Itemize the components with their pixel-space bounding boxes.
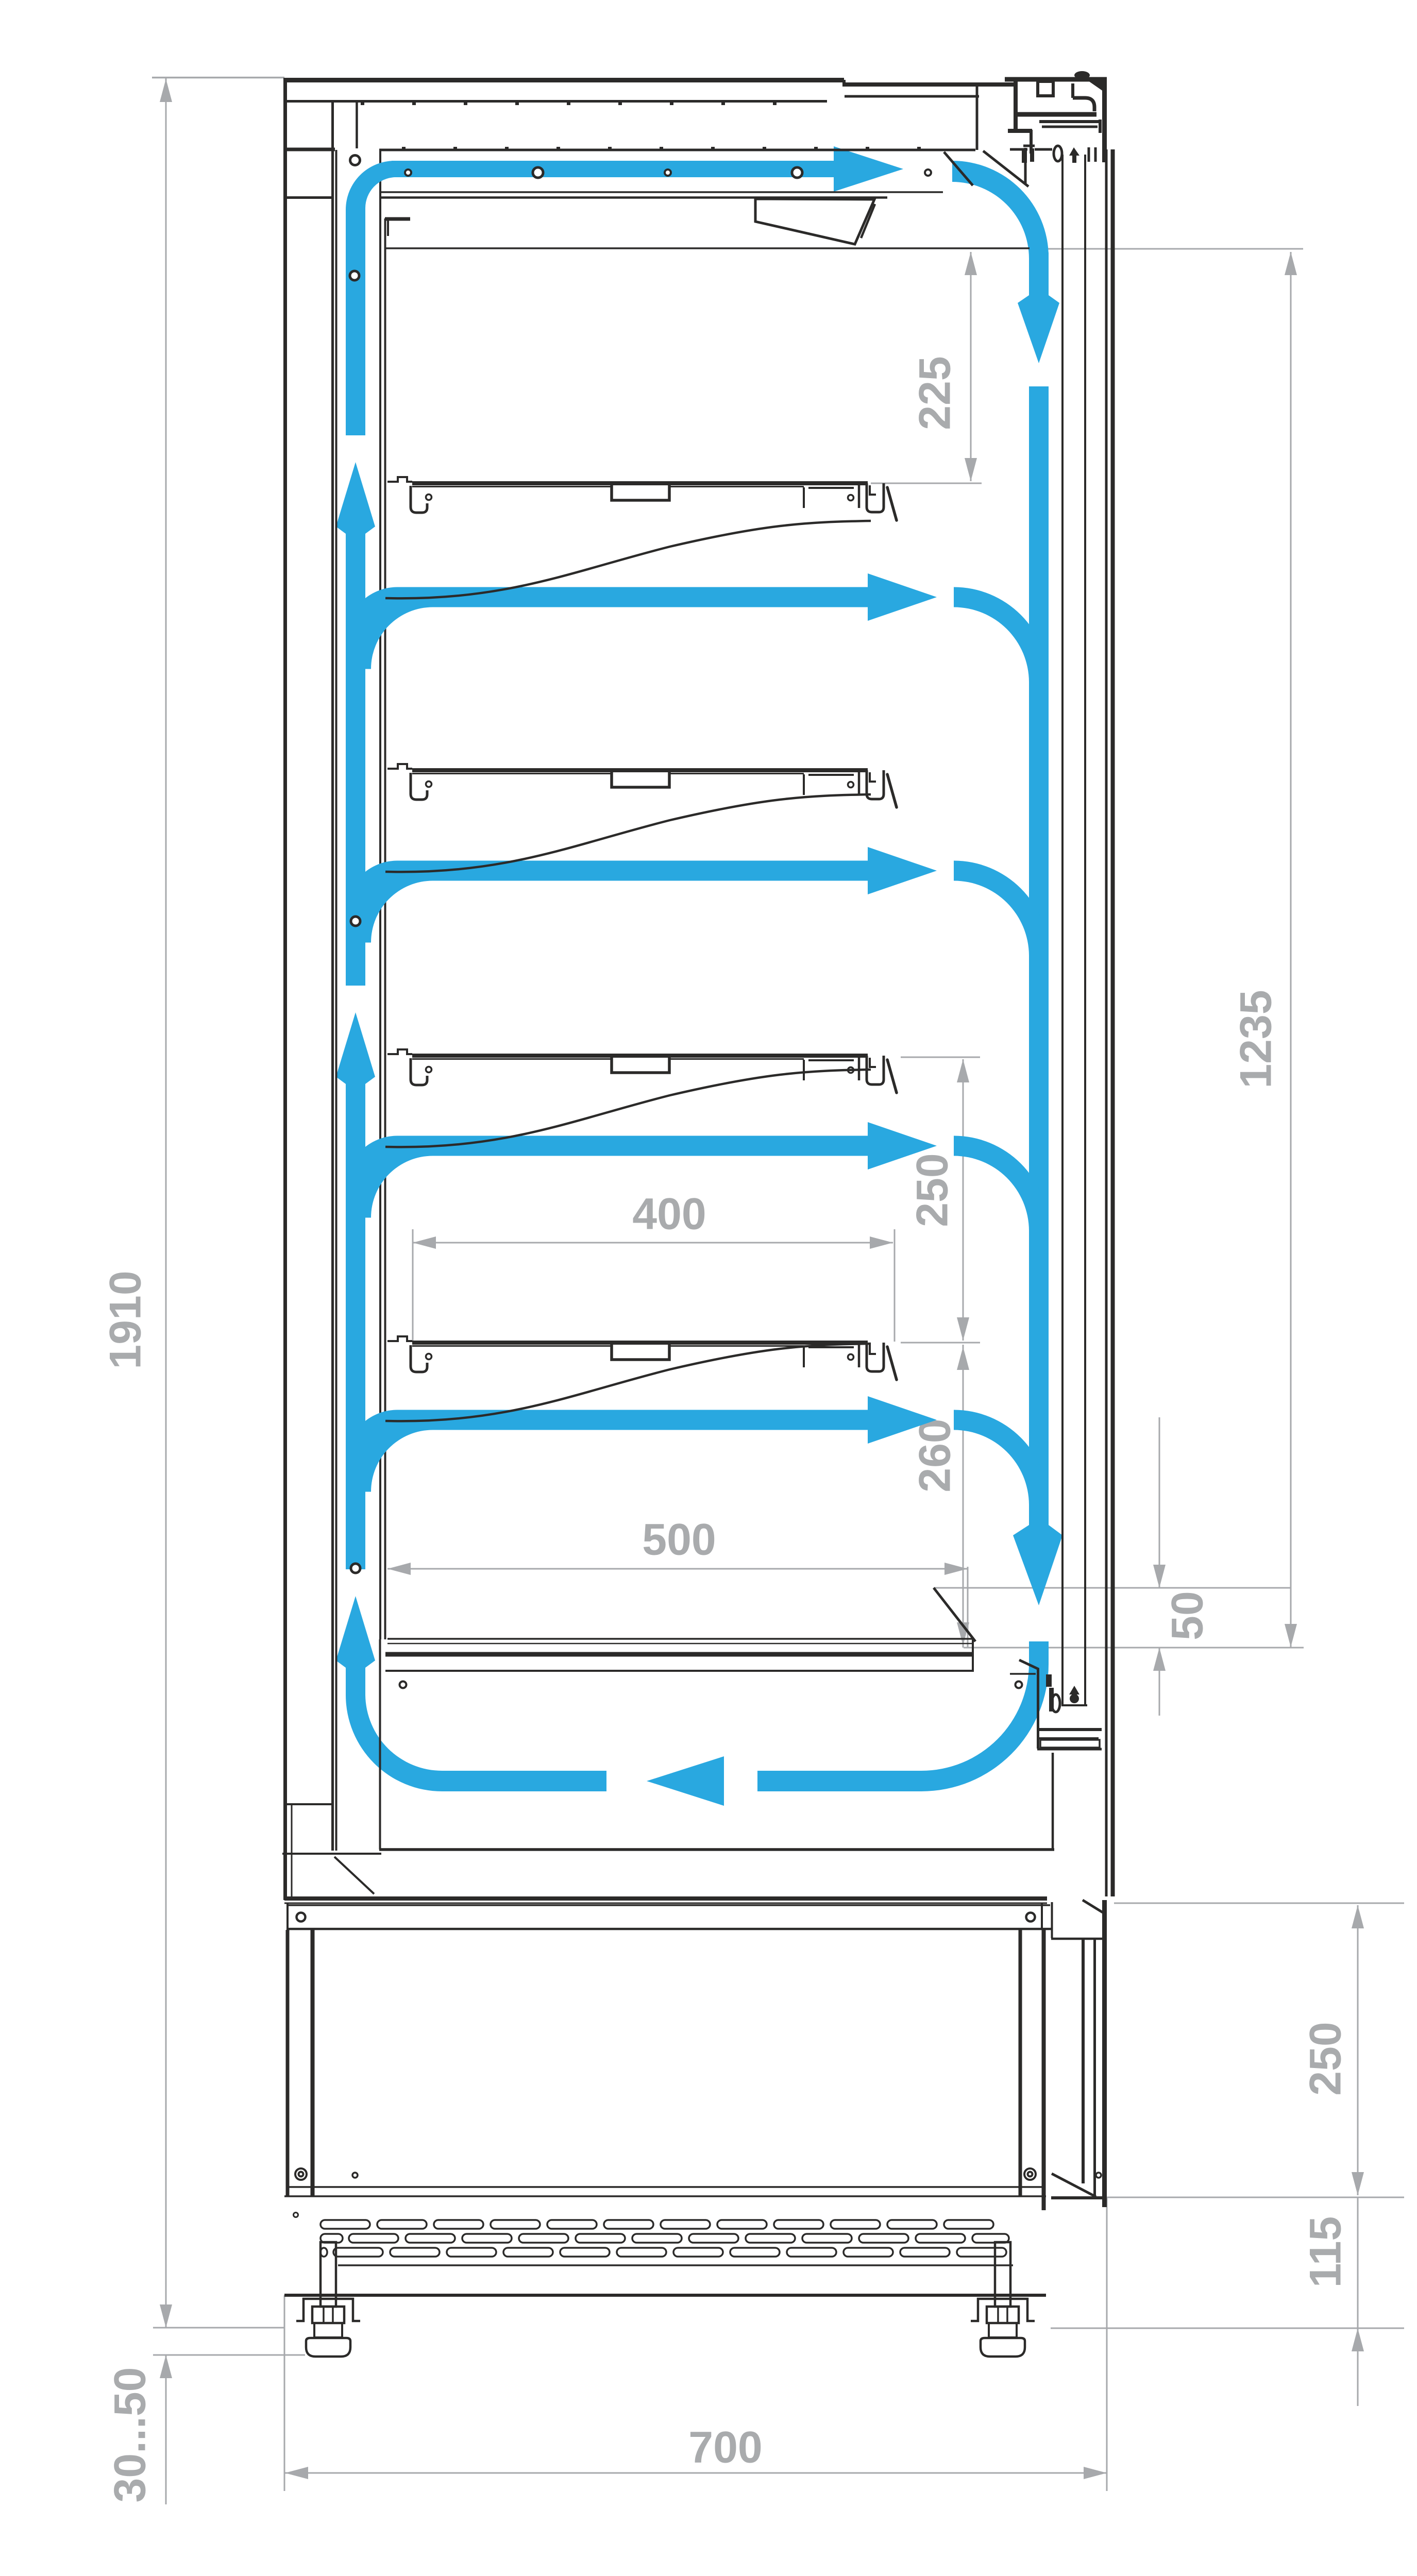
- svg-text:400: 400: [632, 1190, 706, 1239]
- svg-text:225: 225: [910, 356, 960, 430]
- svg-text:1910: 1910: [101, 1270, 150, 1369]
- svg-text:700: 700: [688, 2423, 763, 2472]
- svg-text:50: 50: [1163, 1591, 1212, 1640]
- svg-text:260: 260: [910, 1418, 960, 1493]
- svg-text:115: 115: [1301, 2216, 1351, 2288]
- svg-text:500: 500: [642, 1515, 716, 1565]
- svg-text:250: 250: [1301, 2022, 1351, 2096]
- svg-text:250: 250: [908, 1153, 957, 1227]
- svg-text:1235: 1235: [1232, 990, 1281, 1088]
- svg-text:30...50: 30...50: [106, 2367, 155, 2503]
